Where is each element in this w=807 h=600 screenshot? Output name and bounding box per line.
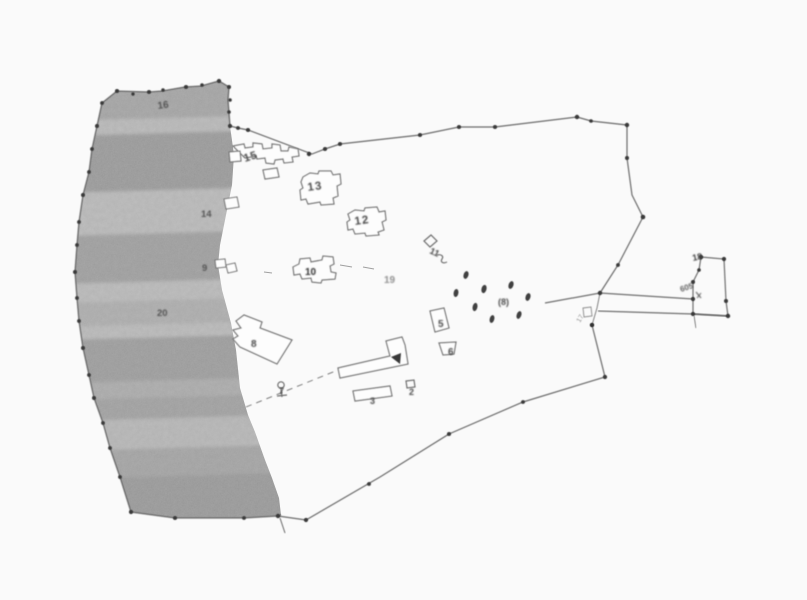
svg-text:6: 6 <box>448 347 454 358</box>
svg-text:5: 5 <box>438 319 444 330</box>
svg-text:3: 3 <box>370 396 375 406</box>
svg-text:8: 8 <box>251 339 257 350</box>
svg-text:9: 9 <box>202 263 207 274</box>
svg-text:(8): (8) <box>498 297 509 307</box>
svg-text:13: 13 <box>307 180 324 194</box>
svg-text:18: 18 <box>691 251 703 263</box>
svg-text:7: 7 <box>279 386 284 396</box>
svg-text:2: 2 <box>409 387 414 397</box>
svg-text:12: 12 <box>354 214 371 228</box>
svg-text:10: 10 <box>305 267 317 278</box>
svg-text:16: 16 <box>157 99 170 112</box>
svg-text:14: 14 <box>201 209 212 220</box>
svg-text:20: 20 <box>157 308 168 319</box>
svg-text:19: 19 <box>384 275 396 286</box>
